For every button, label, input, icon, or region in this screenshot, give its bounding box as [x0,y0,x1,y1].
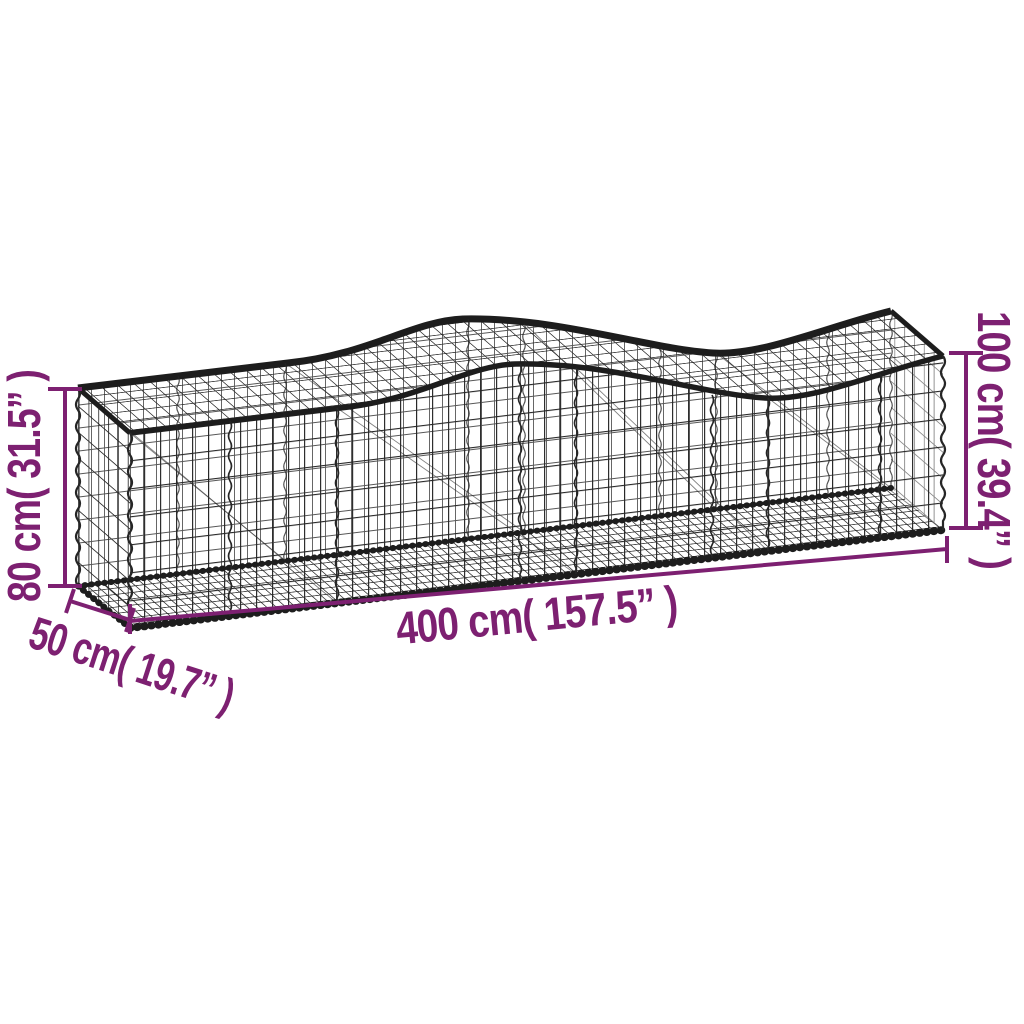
gabion-diagram-canvas: 80 cm( 31.5” ) 100 cm( 39.4” ) 400 cm( 1… [0,0,1024,1024]
product-dimension-diagram: 80 cm( 31.5” ) 100 cm( 39.4” ) 400 cm( 1… [0,0,1024,1024]
dimension-label-height-left: 80 cm( 31.5” ) [0,370,50,602]
dimension-label-height-right: 100 cm( 39.4” ) [968,311,1020,569]
gabion-basket [76,311,945,628]
